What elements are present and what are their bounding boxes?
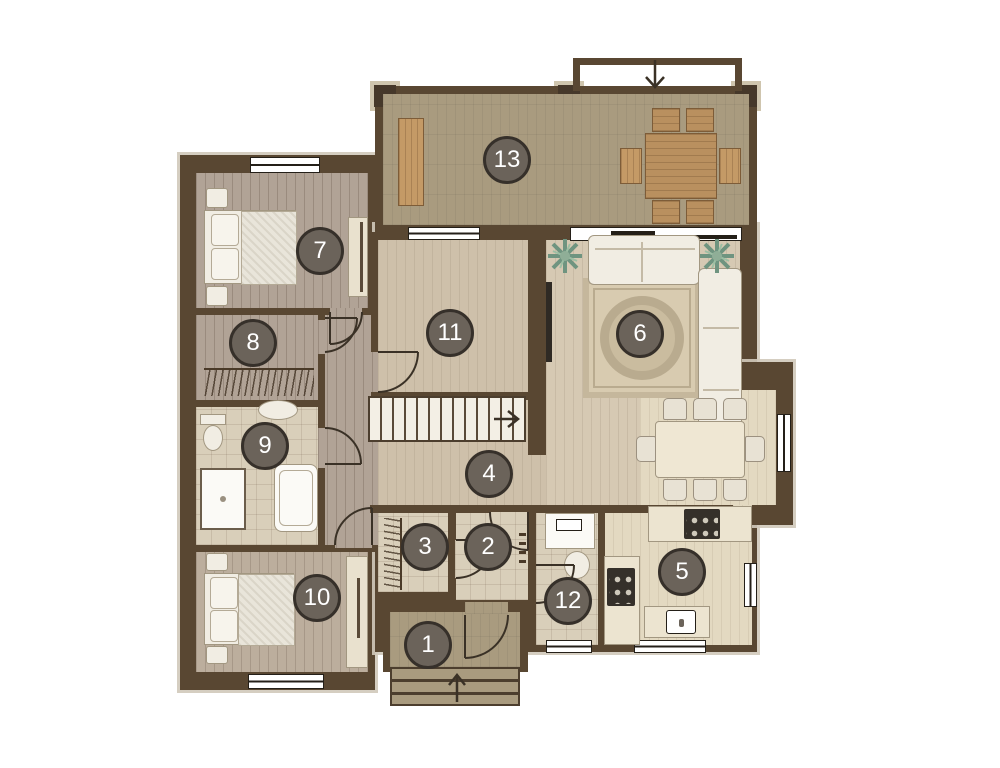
outdoor-chair: [652, 108, 680, 132]
bench: [398, 118, 424, 206]
wall-living-west: [528, 240, 546, 455]
room-marker-12: 12: [544, 577, 592, 625]
window: [546, 640, 592, 653]
window: [744, 563, 757, 607]
wall-vestibule2-bath12: [528, 605, 536, 648]
nightstand: [206, 286, 228, 306]
wall-closet3-south: [378, 592, 455, 600]
outdoor-chair: [652, 200, 680, 224]
nightstand: [206, 188, 228, 208]
wall-closet3-vestibule2: [448, 512, 456, 540]
wardrobe-hangers: [204, 368, 314, 396]
chair: [663, 398, 687, 420]
chair: [723, 479, 747, 501]
sink: [556, 519, 582, 531]
outdoor-table: [645, 133, 717, 199]
sofa: [588, 235, 700, 285]
wall-corridor-west: [318, 354, 325, 428]
room-marker-7: 7: [296, 227, 344, 275]
toilet-bowl: [203, 425, 223, 451]
outdoor-chair: [686, 108, 714, 132]
dining-table: [655, 421, 745, 478]
room-marker-13: 13: [483, 136, 531, 184]
chair: [693, 479, 717, 501]
wall-room7-south: [196, 308, 330, 315]
nightstand: [206, 646, 228, 664]
tv: [546, 282, 552, 362]
front-door-threshold: [465, 602, 508, 614]
window: [248, 674, 324, 689]
nightstand: [206, 553, 228, 571]
garden-steps-rail: [573, 58, 742, 65]
bathtub-inner: [279, 470, 313, 526]
kitchen-sink: [666, 610, 696, 634]
room-marker-8: 8: [229, 319, 277, 367]
garden-steps-rail: [573, 58, 580, 91]
radiator: [519, 533, 526, 563]
blanket: [241, 211, 297, 285]
wardrobe-hangers: [384, 518, 402, 590]
room-marker-4: 4: [465, 450, 513, 498]
sofa-cushion-line: [703, 327, 739, 329]
wall-corridor-west: [318, 468, 325, 548]
cooktop: [684, 509, 720, 539]
chair: [636, 436, 656, 462]
staircase: [368, 396, 526, 442]
shower-drain: [220, 496, 226, 502]
toilet: [200, 414, 226, 425]
porch-step: [390, 667, 520, 681]
porch-step: [390, 680, 520, 694]
wardrobe-door-line: [357, 578, 360, 638]
sofa-back-line: [595, 248, 695, 250]
wall-corridor-west: [318, 315, 325, 320]
garden-steps-rail: [735, 58, 742, 91]
blanket: [238, 574, 295, 646]
window: [634, 640, 706, 653]
chair: [745, 436, 765, 462]
room-marker-1: 1: [404, 621, 452, 669]
pillow: [210, 610, 238, 642]
window: [777, 414, 791, 472]
wardrobe-door-line: [360, 222, 363, 292]
chair: [663, 479, 687, 501]
room-marker-10: 10: [293, 574, 341, 622]
faucet: [679, 619, 684, 627]
pillow: [210, 577, 238, 609]
pillow: [211, 214, 239, 246]
oven-detail: [609, 570, 633, 604]
outdoor-chair: [620, 148, 642, 184]
chair: [693, 398, 717, 420]
oven: [607, 568, 635, 606]
wall-hall-south: [370, 505, 490, 513]
outdoor-chair: [719, 148, 741, 184]
cooktop-burners: [686, 511, 718, 537]
toilet-bowl: [564, 551, 590, 579]
wall-bath9-room10: [196, 545, 335, 552]
porch-step: [390, 693, 520, 706]
room-marker-2: 2: [464, 523, 512, 571]
wall-room11-west: [371, 232, 378, 352]
pillow: [211, 248, 239, 280]
window: [250, 157, 320, 173]
sink: [258, 400, 298, 420]
room-marker-11: 11: [426, 309, 474, 357]
room-marker-6: 6: [616, 310, 664, 358]
outdoor-chair: [686, 200, 714, 224]
chair: [723, 398, 747, 420]
sofa-cushion-line: [703, 389, 739, 391]
floor-plan: 1 2 3 4 5 6 7 8 9 10 11 12 13: [0, 0, 1000, 768]
room-marker-9: 9: [241, 422, 289, 470]
wall-vestibule2-bath12: [528, 512, 536, 565]
wall-bath9-room10: [372, 545, 378, 552]
room-marker-5: 5: [658, 548, 706, 596]
room-marker-3: 3: [401, 523, 449, 571]
window: [408, 227, 480, 240]
wardrobe: [348, 217, 368, 297]
wall-room8-bath9: [196, 400, 318, 407]
